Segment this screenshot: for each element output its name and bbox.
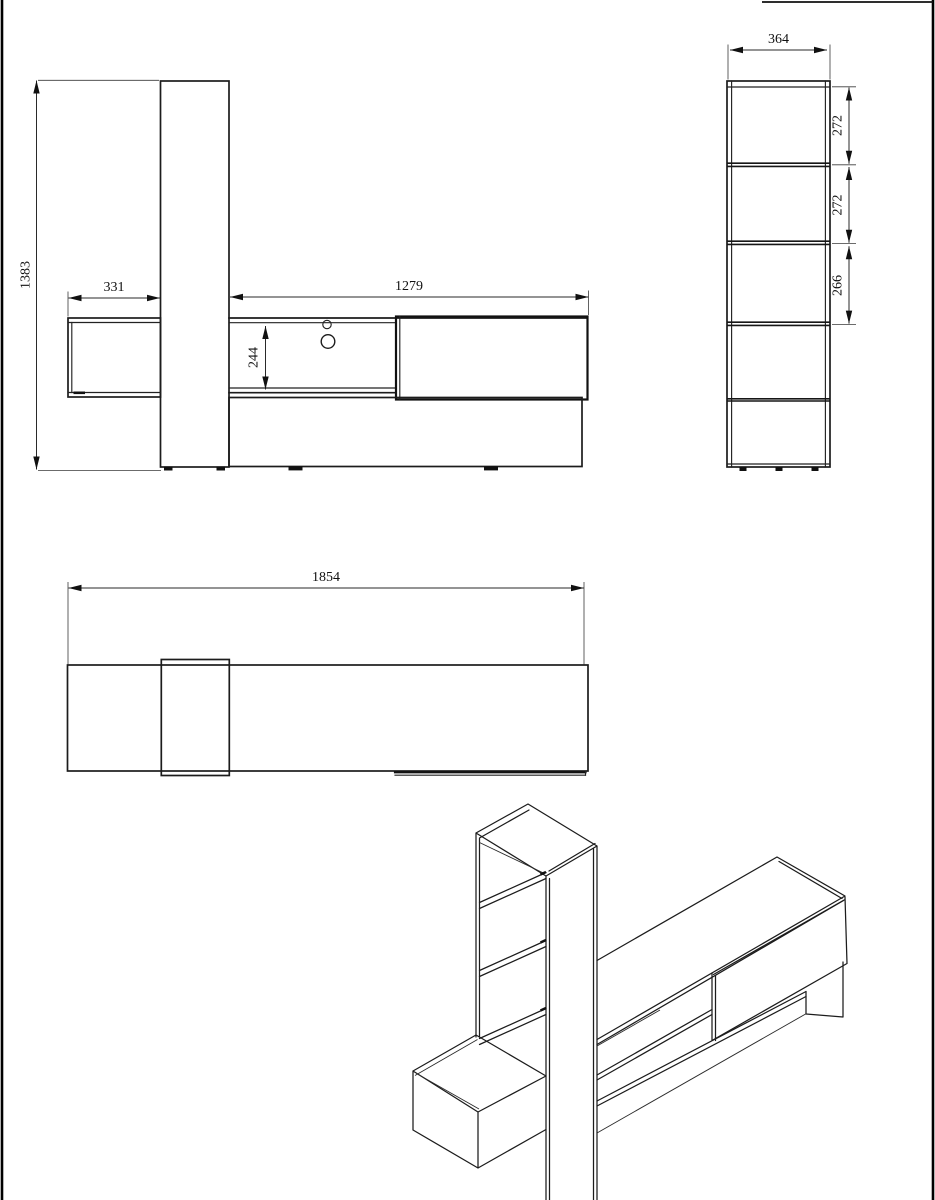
dim-label-shelf-gap-bottom: 266 [831, 275, 846, 296]
front-column-foot-right [217, 467, 226, 471]
technical-drawing: 1383 331 1279 244 [0, 0, 935, 1200]
dim-label-niche-height: 244 [247, 347, 262, 368]
drawing-sheet: 1383 331 1279 244 [0, 0, 935, 1200]
front-column-foot-left [164, 467, 173, 471]
front-cable-hole [321, 335, 335, 349]
dim-label-bench-width: 1279 [395, 279, 423, 294]
front-bench-foot-right [484, 466, 498, 470]
side-foot-3 [812, 467, 819, 471]
dim-label-total-width: 1854 [312, 570, 340, 585]
dim-label-shelf-gap-top: 272 [831, 115, 846, 136]
front-bench-foot-left [289, 466, 303, 470]
side-foot-1 [740, 467, 747, 471]
dim-label-cabinet-width: 331 [104, 280, 125, 295]
side-foot-2 [776, 467, 783, 471]
dim-label-total-height: 1383 [19, 261, 34, 289]
dim-label-depth: 364 [768, 32, 789, 47]
dim-label-shelf-gap-middle: 272 [831, 195, 846, 216]
